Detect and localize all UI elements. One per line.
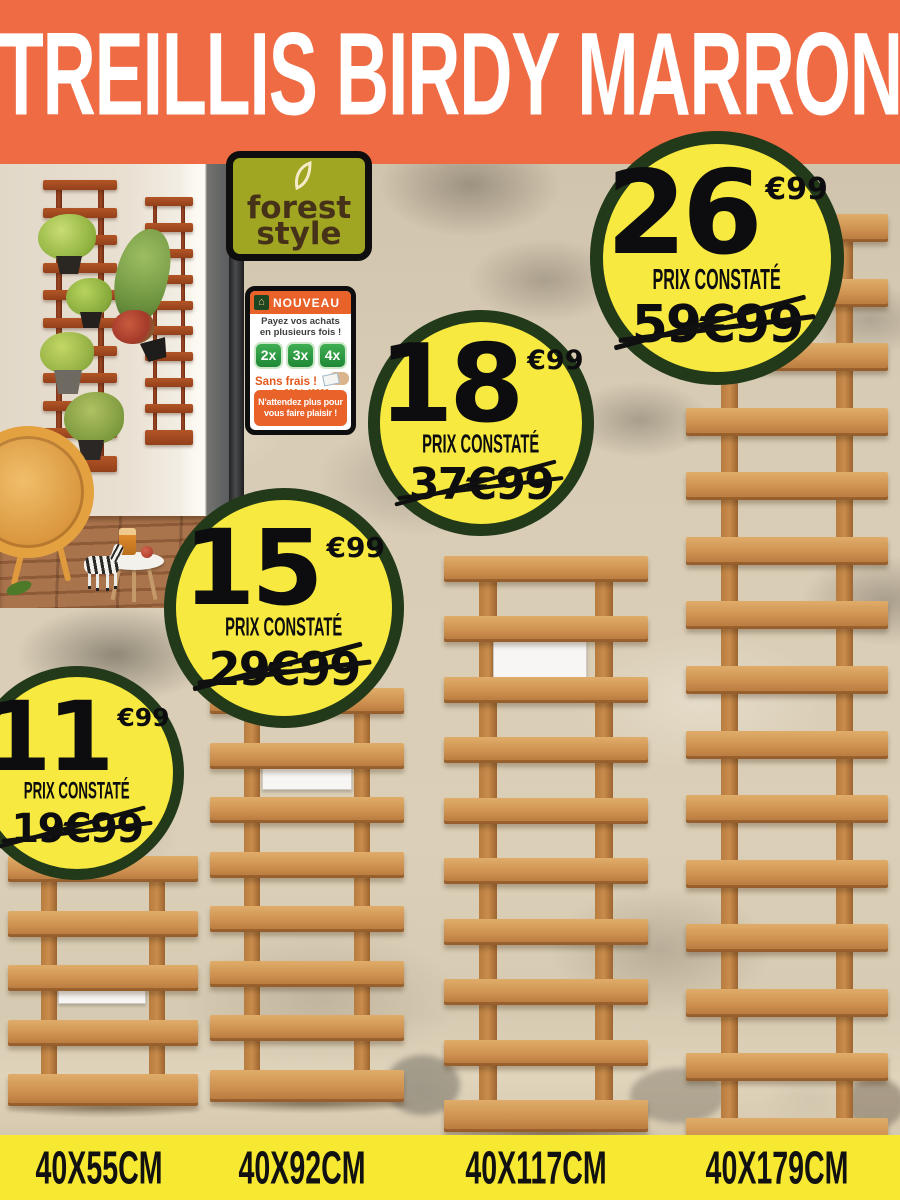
- trellis-rung: [686, 1053, 888, 1081]
- trellis-rung: [444, 677, 648, 703]
- no-fees-label: Sans frais !: [255, 376, 317, 388]
- product-trellis: [448, 556, 644, 1132]
- trellis-rung: [686, 601, 888, 629]
- trellis-rung: [686, 795, 888, 823]
- trellis-rung: [145, 197, 193, 206]
- hand-card-icon: [323, 370, 349, 386]
- trellis-rung: [8, 911, 197, 937]
- promo-new-label: NOUVEAU: [273, 296, 340, 310]
- trellis-rung: [444, 616, 648, 642]
- trellis-rung: [145, 378, 193, 387]
- size-bar: 40X55CM 40X92CM 40X117CM 40X179CM: [0, 1135, 900, 1200]
- brand-logo: forest style: [226, 151, 372, 261]
- product-trellis: [12, 856, 194, 1106]
- trellis-rung: [8, 965, 197, 991]
- trellis-rung: [210, 852, 403, 878]
- trellis-rung: [210, 906, 403, 932]
- trellis-rung: [444, 1040, 648, 1066]
- trellis-rung: [145, 430, 193, 445]
- trellis-rung: [686, 731, 888, 759]
- trellis-rung: [444, 979, 648, 1005]
- price-euros: 11: [0, 697, 110, 779]
- size-label-92: 40X92CM: [238, 1141, 365, 1194]
- installment-2x: 2x: [254, 342, 283, 369]
- promo-footer-line1: N'attendez plus pour: [254, 397, 347, 408]
- price-euros: 26: [606, 165, 758, 264]
- promo-text-line2: en plusieurs fois !: [250, 328, 351, 339]
- price-cents: €99: [765, 172, 828, 207]
- trellis-rung: [444, 556, 648, 582]
- trellis-rung: [686, 860, 888, 888]
- promo-panel: ⌂ NOUVEAU Payez vos achats en plusieurs …: [245, 286, 356, 435]
- trellis-rung: [686, 989, 888, 1017]
- trellis-rung: [43, 318, 118, 328]
- installment-4x: 4x: [318, 342, 347, 369]
- size-label-117: 40X117CM: [465, 1141, 606, 1194]
- trellis-rung: [686, 472, 888, 500]
- price-cents: €99: [326, 531, 384, 564]
- trellis-rung: [210, 1070, 403, 1102]
- price-euros: 15: [183, 524, 319, 612]
- table-leg: [132, 568, 136, 602]
- plant-pot: [80, 312, 102, 328]
- plant: [66, 278, 112, 316]
- trellis-rung: [8, 1074, 197, 1106]
- old-price: 19€99: [11, 809, 142, 849]
- plant-pot: [54, 370, 82, 394]
- trellis-rung: [444, 737, 648, 763]
- plant: [40, 332, 94, 374]
- promo-text-line1: Payez vos achats: [250, 317, 351, 328]
- old-price: 59€99: [632, 299, 803, 351]
- price: 15 €99: [183, 524, 385, 612]
- trellis-rung: [686, 408, 888, 436]
- trellis-rung: [210, 1015, 403, 1041]
- price-tag-blank: [493, 640, 587, 682]
- old-price: 29€99: [209, 646, 360, 692]
- trellis-rung: [686, 537, 888, 565]
- price: 11 €99: [0, 697, 170, 779]
- poster: TREILLIS BIRDY MARRON forest style ⌂ NOU…: [0, 0, 900, 1200]
- trellis-rung: [444, 858, 648, 884]
- zebra-leg: [106, 572, 109, 591]
- trellis-rung: [444, 798, 648, 824]
- flower-plant: [112, 310, 154, 344]
- installment-3x: 3x: [286, 342, 315, 369]
- trellis-rung: [210, 797, 403, 823]
- promo-panel-header: ⌂ NOUVEAU: [250, 291, 351, 314]
- product-trellis: [214, 688, 400, 1102]
- trellis-rung: [210, 743, 403, 769]
- trellis-rung: [210, 961, 403, 987]
- size-label-55: 40X55CM: [35, 1141, 162, 1194]
- size-label-179: 40X179CM: [705, 1141, 848, 1194]
- observed-price-label: PRIX CONSTATÉ: [225, 613, 342, 643]
- trellis-rung: [43, 180, 118, 190]
- price-badge-18: 18 €99 PRIX CONSTATÉ 37€99: [368, 310, 594, 536]
- sign-pole: [229, 255, 244, 520]
- plant: [38, 214, 96, 260]
- price-euros: 18: [378, 339, 520, 431]
- promo-footer: N'attendez plus pour vous faire plaisir …: [254, 390, 347, 426]
- apple: [141, 546, 153, 558]
- price: 18 €99: [378, 339, 583, 431]
- price-badge-15: 15 €99 PRIX CONSTATÉ 29€99: [164, 488, 404, 728]
- trellis-rung: [444, 919, 648, 945]
- brand-name-line2: style: [256, 221, 341, 247]
- price-cents: €99: [117, 703, 169, 732]
- observed-price-label: PRIX CONSTATÉ: [653, 263, 781, 297]
- price-badge-26: 26 €99 PRIX CONSTATÉ 59€99: [590, 131, 844, 385]
- no-fees-row: Sans frais !: [255, 372, 351, 386]
- trellis-rung: [686, 666, 888, 694]
- installment-options: 2x 3x 4x: [250, 342, 351, 369]
- trellis-rung: [145, 404, 193, 413]
- plant-pot: [56, 256, 82, 274]
- zebra-leg: [96, 572, 99, 591]
- trellis-rung: [444, 1100, 648, 1132]
- trellis-rung: [686, 924, 888, 952]
- trellis-rung: [8, 1020, 197, 1046]
- observed-price-label: PRIX CONSTATÉ: [422, 430, 539, 460]
- promo-footer-line2: vous faire plaisir !: [254, 408, 347, 419]
- plant: [64, 392, 124, 444]
- title-banner: TREILLIS BIRDY MARRON: [0, 0, 900, 164]
- house-icon: ⌂: [254, 295, 269, 310]
- price: 26 €99: [606, 165, 828, 264]
- old-price: 37€99: [409, 463, 553, 507]
- observed-price-label: PRIX CONSTATÉ: [24, 779, 130, 807]
- price-cents: €99: [527, 345, 583, 376]
